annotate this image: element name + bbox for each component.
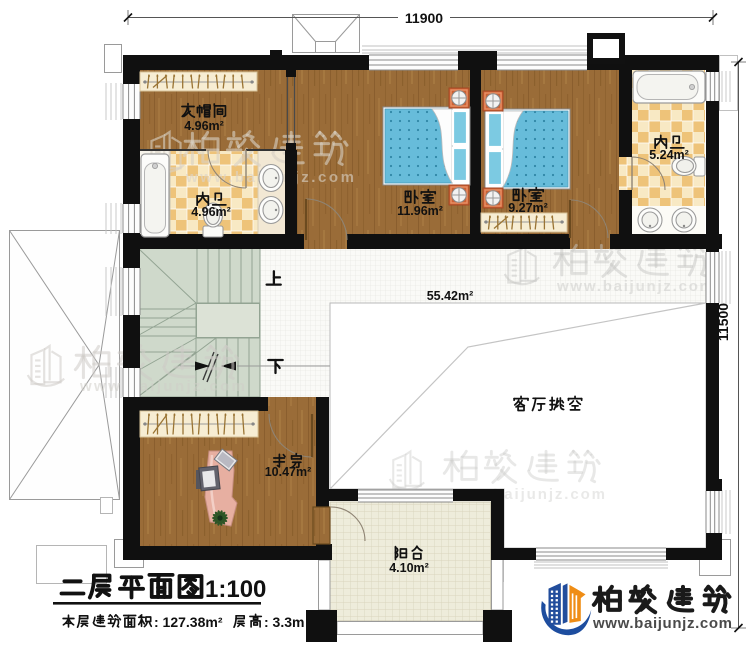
svg-text:10.47m²: 10.47m² <box>265 465 312 479</box>
svg-text:9.27m²: 9.27m² <box>508 201 548 215</box>
svg-text:11.96m²: 11.96m² <box>397 204 443 218</box>
svg-text:5.24m²: 5.24m² <box>649 148 689 162</box>
svg-text:www.baijunjz.com: www.baijunjz.com <box>592 615 732 632</box>
svg-text:55.42m²: 55.42m² <box>427 289 474 303</box>
svg-text:: 3.3m: : 3.3m <box>264 614 304 630</box>
svg-text:11900: 11900 <box>405 10 443 26</box>
svg-text:: 127.38m²: : 127.38m² <box>154 614 223 630</box>
svg-text:4.96m²: 4.96m² <box>184 119 224 133</box>
svg-text:4.96m²: 4.96m² <box>191 205 231 219</box>
svg-text:4.10m²: 4.10m² <box>389 561 429 575</box>
svg-text:1:100: 1:100 <box>205 576 266 603</box>
